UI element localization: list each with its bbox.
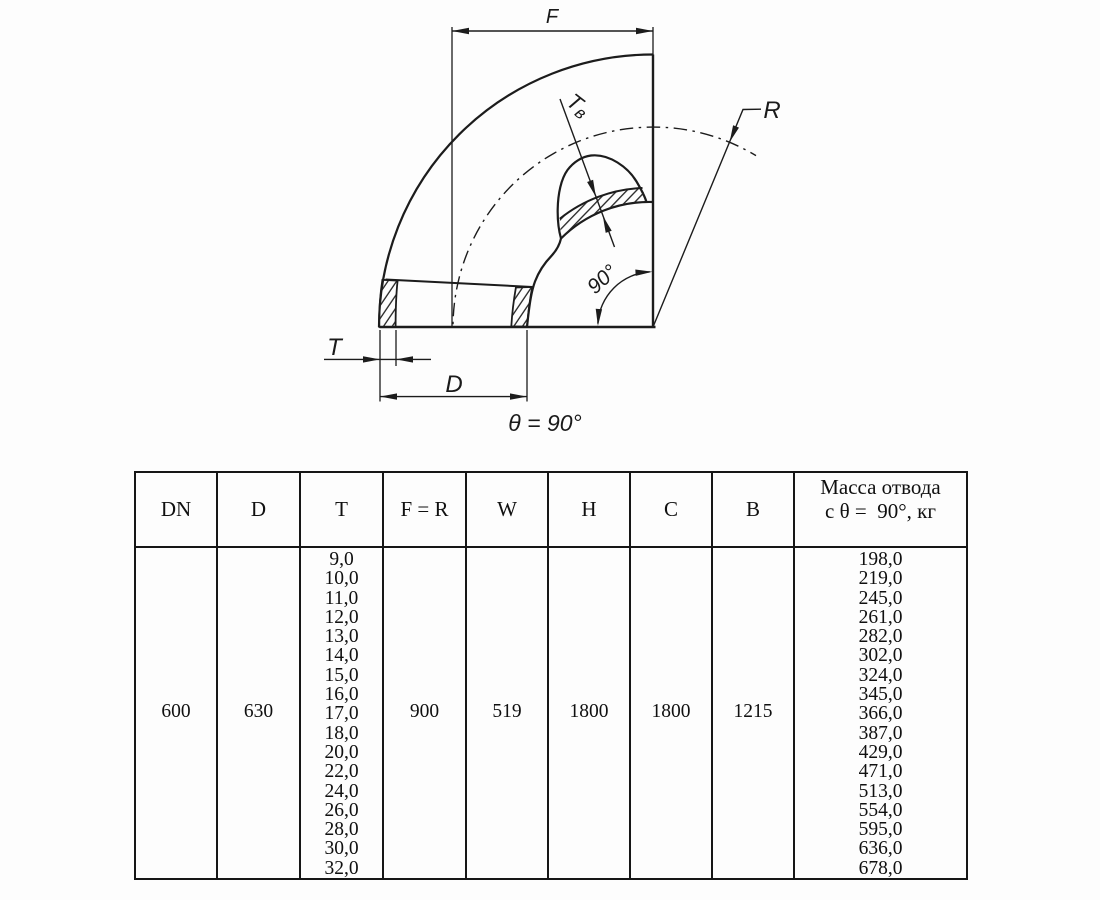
svg-text:F: F [546,6,560,28]
svg-text:θ = 90°: θ = 90° [508,410,581,436]
svg-text:90°: 90° [583,260,622,298]
svg-text:R: R [763,97,780,124]
svg-text:T: T [327,334,344,361]
svg-text:D: D [445,371,462,398]
svg-text:Tв: Tв [561,88,595,123]
